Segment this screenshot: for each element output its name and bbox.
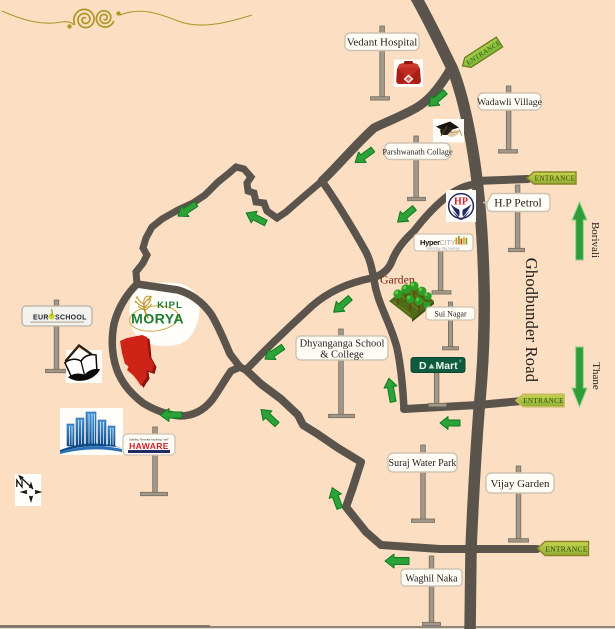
svg-text:ENTRANCE: ENTRANCE — [545, 544, 588, 553]
svg-text:EUR: EUR — [33, 315, 49, 322]
svg-text:Waghil Naka: Waghil Naka — [405, 574, 458, 585]
svg-text:Vedant Hospital: Vedant Hospital — [347, 37, 418, 49]
svg-text:Garden: Garden — [380, 273, 415, 287]
svg-text:Suraj Water Park: Suraj Water Park — [389, 458, 457, 469]
svg-text:Wadawli Village: Wadawli Village — [477, 97, 543, 108]
svg-text:H.P Petrol: H.P Petrol — [494, 198, 542, 210]
svg-text:Parshwanath Collage: Parshwanath Collage — [382, 148, 453, 157]
svg-text:SCHOOL: SCHOOL — [55, 315, 87, 322]
svg-text:& College: & College — [320, 350, 364, 361]
svg-text:HP: HP — [454, 197, 468, 208]
svg-text:®: ® — [459, 360, 462, 364]
svg-text:Ghodbunder Road: Ghodbunder Road — [522, 258, 541, 383]
svg-text:HAWARE: HAWARE — [129, 441, 169, 451]
svg-text:Mart: Mart — [436, 360, 459, 372]
svg-text:Dhyanganga School: Dhyanganga School — [300, 339, 385, 350]
svg-text:Borivali: Borivali — [589, 222, 601, 258]
svg-text:Thane: Thane — [590, 362, 602, 390]
svg-text:KIPL: KIPL — [157, 300, 183, 311]
svg-text:D: D — [419, 360, 427, 372]
svg-text:MORYA: MORYA — [131, 312, 184, 328]
svg-text:Everyday. Big savings: Everyday. Big savings — [426, 247, 459, 251]
svg-text:ENTRANCE: ENTRANCE — [535, 175, 576, 183]
svg-text:Vijay Garden: Vijay Garden — [491, 478, 550, 490]
svg-text:ENTRANCE: ENTRANCE — [523, 397, 564, 405]
svg-text:Sui Nagar: Sui Nagar — [434, 310, 467, 319]
